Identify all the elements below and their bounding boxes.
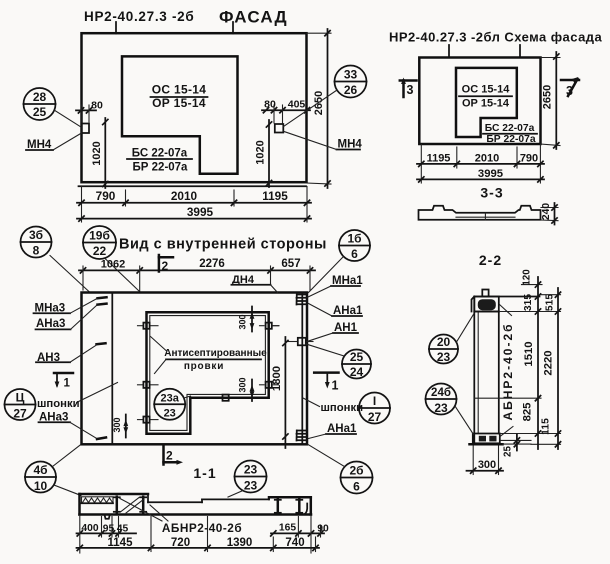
svg-text:23: 23 bbox=[244, 479, 258, 493]
svg-text:95: 95 bbox=[103, 524, 115, 535]
svg-text:ФАСАД: ФАСАД bbox=[219, 8, 288, 27]
svg-text:1390: 1390 bbox=[227, 537, 253, 549]
svg-text:25: 25 bbox=[503, 446, 514, 457]
svg-text:2б: 2б bbox=[349, 464, 363, 478]
svg-text:27: 27 bbox=[368, 410, 382, 424]
svg-text:1: 1 bbox=[64, 378, 71, 390]
svg-text:1020: 1020 bbox=[91, 141, 103, 165]
svg-text:23: 23 bbox=[164, 408, 176, 420]
svg-text:24б: 24б bbox=[431, 387, 451, 399]
svg-text:23: 23 bbox=[244, 463, 258, 477]
svg-text:300: 300 bbox=[238, 314, 248, 329]
svg-text:Антисептированные: Антисептированные bbox=[164, 348, 267, 359]
svg-text:790: 790 bbox=[96, 189, 116, 203]
svg-text:10: 10 bbox=[34, 479, 48, 493]
svg-text:515: 515 bbox=[545, 294, 556, 311]
svg-text:2010: 2010 bbox=[171, 189, 198, 203]
svg-text:3995: 3995 bbox=[478, 168, 503, 180]
svg-text:I: I bbox=[373, 394, 376, 408]
svg-text:провки: провки bbox=[184, 361, 224, 372]
svg-text:8: 8 bbox=[33, 244, 40, 258]
svg-text:90: 90 bbox=[317, 524, 329, 535]
svg-text:ОР 15-14: ОР 15-14 bbox=[152, 96, 206, 110]
svg-text:2: 2 bbox=[166, 449, 173, 463]
svg-text:657: 657 bbox=[281, 258, 300, 270]
svg-text:25: 25 bbox=[33, 105, 47, 119]
svg-text:НР2-40.27.3 -2бл Схема фасада: НР2-40.27.3 -2бл Схема фасада bbox=[389, 30, 602, 45]
svg-text:2010: 2010 bbox=[475, 153, 499, 165]
svg-text:300: 300 bbox=[478, 459, 496, 471]
svg-text:4б: 4б bbox=[33, 463, 47, 477]
svg-text:240: 240 bbox=[541, 203, 552, 220]
svg-text:3б: 3б bbox=[29, 228, 43, 242]
svg-text:23: 23 bbox=[434, 401, 448, 415]
svg-text:БР 22-07а: БР 22-07а bbox=[133, 162, 189, 174]
svg-text:1510: 1510 bbox=[523, 341, 535, 366]
svg-text:3: 3 bbox=[566, 84, 573, 98]
svg-text:26: 26 bbox=[344, 83, 358, 97]
svg-text:АБНР2-40-2б: АБНР2-40-2б bbox=[501, 322, 515, 420]
svg-text:1062: 1062 bbox=[101, 259, 125, 271]
svg-text:БС 22-07а: БС 22-07а bbox=[485, 123, 535, 134]
svg-text:1195: 1195 bbox=[262, 189, 288, 203]
svg-text:3995: 3995 bbox=[187, 205, 214, 219]
svg-text:20: 20 bbox=[437, 335, 451, 349]
svg-text:115: 115 bbox=[541, 418, 552, 435]
svg-text:300: 300 bbox=[238, 377, 248, 392]
svg-text:ОС 15-14: ОС 15-14 bbox=[152, 83, 206, 97]
svg-text:3: 3 bbox=[407, 83, 414, 97]
svg-text:33: 33 bbox=[344, 68, 358, 82]
svg-text:22: 22 bbox=[93, 244, 107, 258]
svg-text:45: 45 bbox=[117, 524, 129, 535]
svg-text:ОС 15-14: ОС 15-14 bbox=[462, 84, 511, 96]
svg-text:БС 22-07а: БС 22-07а bbox=[132, 148, 188, 160]
svg-text:2220: 2220 bbox=[543, 350, 555, 375]
svg-text:400: 400 bbox=[81, 523, 98, 534]
svg-text:2: 2 bbox=[162, 259, 169, 273]
svg-text:300: 300 bbox=[112, 417, 122, 432]
svg-text:1195: 1195 bbox=[427, 153, 451, 165]
svg-text:24: 24 bbox=[350, 365, 364, 379]
svg-text:АБНР2-40-2б: АБНР2-40-2б bbox=[162, 521, 242, 535]
svg-text:1800: 1800 bbox=[271, 366, 283, 391]
svg-text:2276: 2276 bbox=[199, 258, 225, 270]
svg-text:825: 825 bbox=[522, 403, 534, 422]
svg-text:80: 80 bbox=[264, 99, 276, 111]
svg-text:740: 740 bbox=[285, 537, 304, 549]
svg-text:6: 6 bbox=[351, 247, 358, 261]
svg-text:3-3: 3-3 bbox=[480, 185, 503, 201]
svg-text:80: 80 bbox=[91, 100, 103, 112]
svg-text:ОР 15-14: ОР 15-14 bbox=[462, 98, 510, 110]
svg-text:БР 22-07а: БР 22-07а bbox=[486, 134, 535, 145]
svg-text:1020: 1020 bbox=[255, 140, 267, 164]
svg-text:720: 720 bbox=[171, 537, 190, 549]
svg-text:2-2: 2-2 bbox=[479, 252, 502, 268]
svg-text:НР2-40.27.3 -2б: НР2-40.27.3 -2б bbox=[84, 9, 194, 24]
svg-text:2650: 2650 bbox=[313, 91, 325, 115]
svg-text:790: 790 bbox=[520, 153, 538, 165]
svg-text:405: 405 bbox=[288, 99, 306, 111]
svg-text:25: 25 bbox=[350, 350, 364, 364]
svg-text:1б: 1б bbox=[347, 232, 361, 246]
svg-text:315: 315 bbox=[523, 294, 534, 311]
svg-text:1145: 1145 bbox=[108, 537, 134, 549]
svg-text:23: 23 bbox=[437, 350, 451, 364]
svg-text:165: 165 bbox=[279, 523, 296, 534]
svg-text:АНа3: АНа3 bbox=[36, 318, 65, 330]
svg-text:19б: 19б bbox=[89, 229, 110, 243]
svg-text:1: 1 bbox=[332, 379, 339, 393]
svg-text:28: 28 bbox=[33, 90, 47, 104]
svg-text:Вид с внутренней стороны: Вид с внутренней стороны bbox=[119, 237, 327, 253]
svg-text:6: 6 bbox=[353, 480, 360, 494]
svg-text:2650: 2650 bbox=[542, 85, 554, 109]
svg-text:27: 27 bbox=[13, 407, 27, 421]
svg-text:1-1: 1-1 bbox=[193, 465, 216, 481]
svg-text:шпонки: шпонки bbox=[37, 398, 80, 410]
svg-text:Ц: Ц bbox=[16, 391, 25, 405]
svg-text:шпонки: шпонки bbox=[321, 402, 364, 414]
svg-text:120: 120 bbox=[522, 269, 533, 286]
svg-text:23а: 23а bbox=[161, 393, 180, 405]
